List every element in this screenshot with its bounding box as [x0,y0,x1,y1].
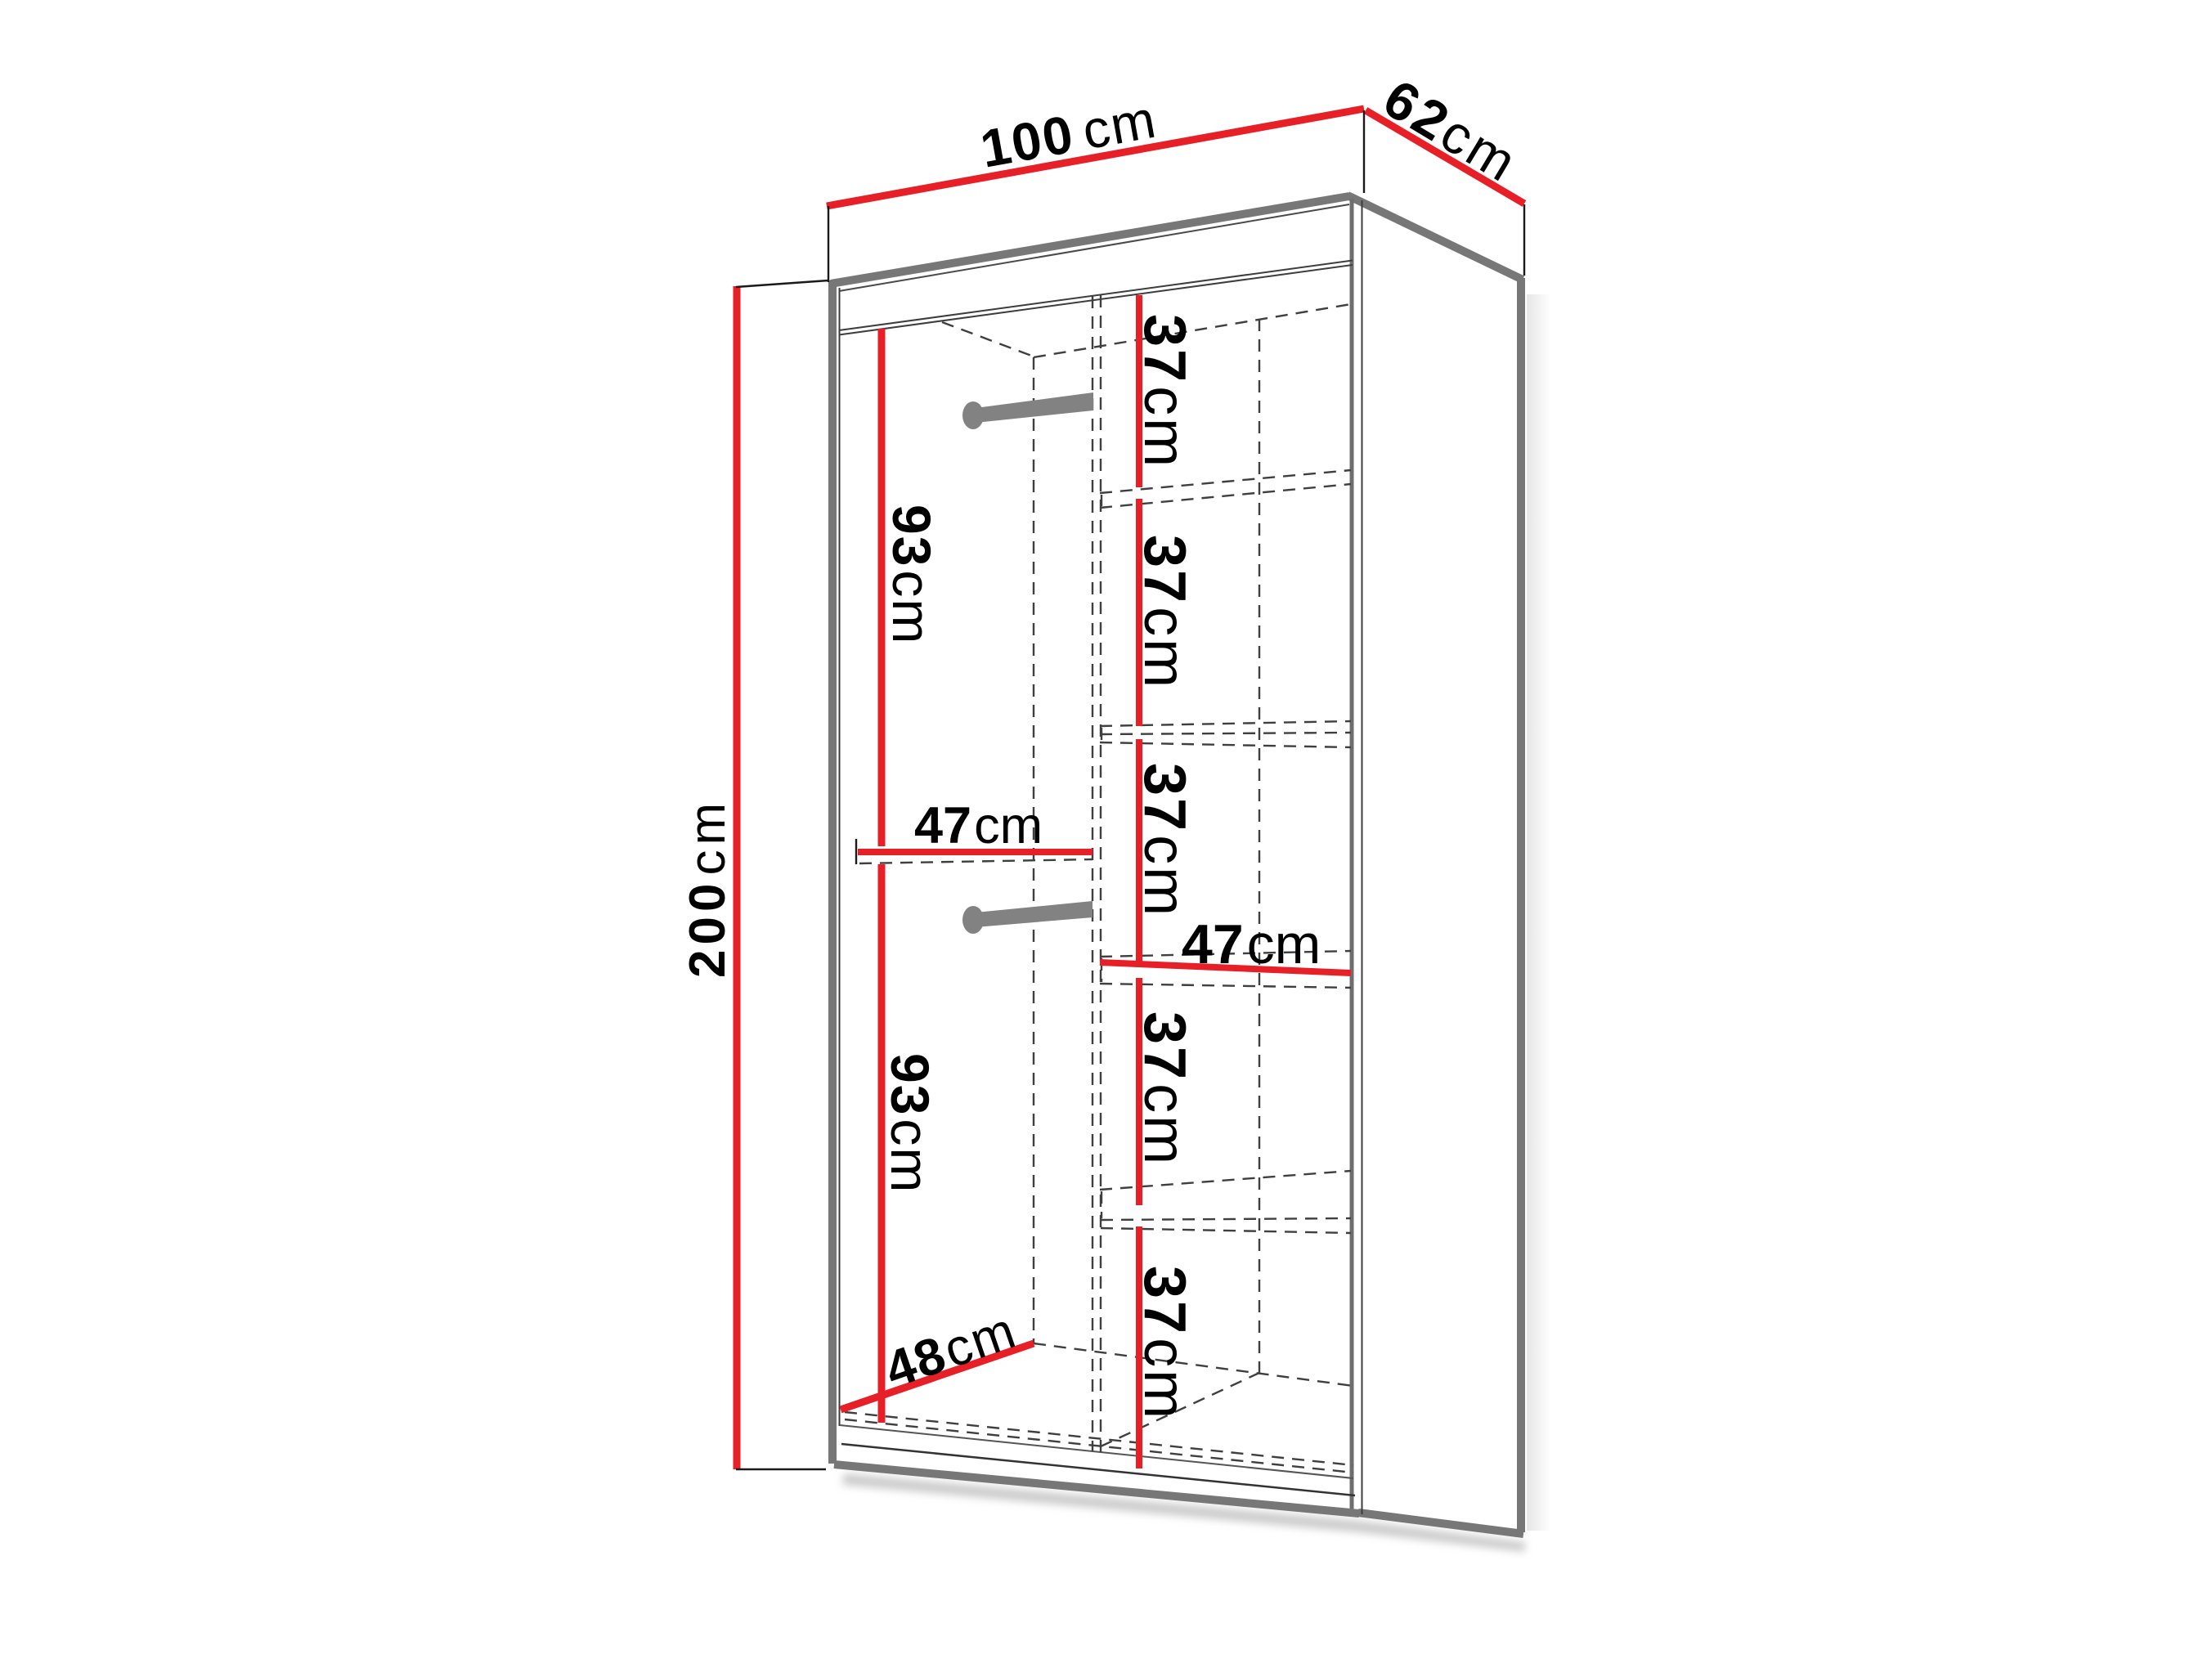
svg-text:37cm: 37cm [1132,314,1197,469]
svg-text:48cm: 48cm [878,1302,1024,1400]
svg-text:47cm: 47cm [1182,913,1321,975]
svg-text:93cm: 93cm [880,1053,940,1194]
svg-text:93cm: 93cm [882,504,942,645]
svg-text:37cm: 37cm [1132,763,1197,918]
svg-text:62cm: 62cm [1374,68,1529,195]
svg-text:37cm: 37cm [1132,1011,1197,1167]
svg-text:47cm: 47cm [914,797,1043,854]
svg-text:37cm: 37cm [1132,535,1197,690]
svg-text:37cm: 37cm [1132,1266,1197,1421]
svg-text:200cm: 200cm [680,798,736,978]
